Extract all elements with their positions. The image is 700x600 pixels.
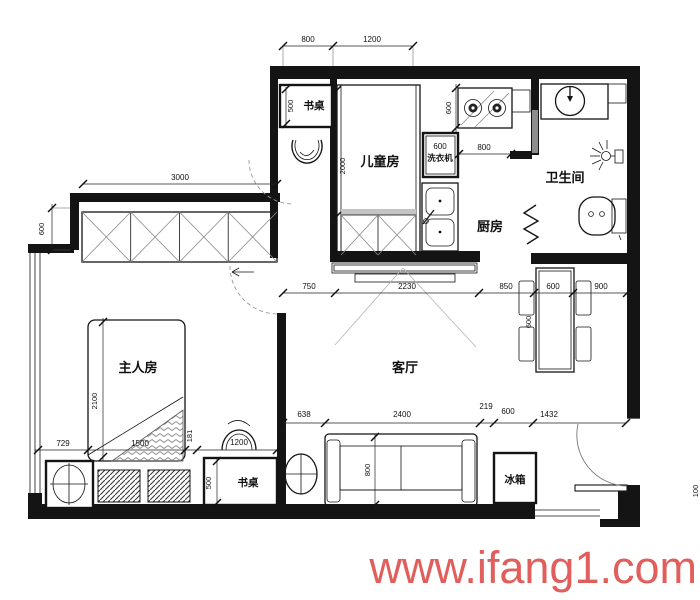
room-label-master: 主人房	[118, 360, 157, 376]
dim-bottom-219: 219	[479, 402, 493, 411]
dim-mid-750: 750	[302, 282, 316, 291]
dim-kitchen-800: 800	[477, 143, 491, 152]
entry-door-leaf	[575, 485, 627, 491]
dim-top-800: 800	[301, 35, 315, 44]
room-label-bathroom: 卫生间	[545, 170, 584, 186]
desk-top-chair	[292, 140, 322, 163]
stove	[458, 88, 530, 128]
bath-basin-counter	[541, 84, 626, 119]
floor-plan-drawing: 书桌 儿童房 600 洗衣机	[0, 0, 700, 600]
dim-desk-top-500: 500	[286, 100, 295, 113]
dimensions: 800 1200 600 800 3000 600 2000 500 750	[34, 35, 700, 509]
entry-door	[535, 424, 627, 516]
desk-bottom: 书桌	[204, 458, 277, 505]
wardrobe	[82, 212, 277, 262]
dim-bottom-638: 638	[297, 410, 311, 419]
dim-mid-2230: 2230	[398, 282, 416, 291]
watermark: www.ifang1.com	[369, 542, 697, 594]
desk-bottom-label: 书桌	[238, 476, 259, 489]
entry-door-swing-arc	[577, 424, 627, 486]
bed-bench-2	[148, 470, 190, 502]
corner-basin	[46, 461, 93, 508]
master-door-arc	[230, 266, 278, 314]
children-bed	[337, 85, 420, 257]
washer-label: 洗衣机	[427, 153, 453, 164]
room-label-kitchen: 厨房	[477, 219, 503, 235]
dim-top-1200: 1200	[363, 35, 381, 44]
dim-bottom-1432: 1432	[540, 410, 558, 419]
dim-mid-850: 850	[499, 282, 513, 291]
tv-sightline-right	[403, 268, 476, 347]
toilet	[579, 197, 626, 240]
kitchen-sink	[422, 183, 458, 251]
bath-door-zigzag	[524, 205, 538, 244]
bed-bench-1	[98, 470, 140, 502]
dim-mid-900: 900	[594, 282, 608, 291]
dim-right-100: 100	[691, 485, 700, 498]
dim-sofa-800: 800	[363, 464, 372, 477]
fridge-label: 冰箱	[505, 473, 526, 486]
room-label-children: 儿童房	[359, 154, 399, 170]
shower-head	[590, 140, 623, 170]
dim-left-181: 181	[185, 430, 194, 443]
dim-stove-600: 600	[444, 102, 453, 115]
room-label-living: 客厅	[392, 360, 418, 376]
dim-wardrobe-3000: 3000	[171, 173, 189, 182]
dim-table-600: 600	[524, 316, 533, 329]
fridge: 冰箱	[494, 453, 536, 503]
door-swing-arrow	[232, 268, 254, 276]
dim-left-1500: 1500	[131, 439, 149, 448]
dim-washer-600: 600	[433, 142, 447, 151]
wall-grey-inset	[532, 110, 538, 153]
side-table	[285, 454, 317, 494]
sofa	[325, 434, 477, 506]
dim-bay-600: 600	[37, 223, 46, 236]
floor-plan-page: 书桌 儿童房 600 洗衣机	[0, 0, 700, 600]
dim-desk-bottom-500: 500	[204, 477, 213, 490]
dim-mid-600: 600	[546, 282, 560, 291]
dim-left-729: 729	[56, 439, 70, 448]
dim-bed-2100: 2100	[90, 393, 99, 410]
dim-bottom-600: 600	[501, 407, 515, 416]
desk-top-label: 书桌	[304, 99, 325, 112]
dim-chair-1200: 1200	[230, 438, 248, 447]
tv-stand	[332, 263, 477, 282]
washing-machine: 600 洗衣机	[423, 133, 458, 177]
dim-children-2000: 2000	[338, 158, 347, 175]
left-window	[30, 253, 40, 498]
tv-sightline-left	[335, 268, 403, 345]
dim-bottom-2400: 2400	[393, 410, 411, 419]
